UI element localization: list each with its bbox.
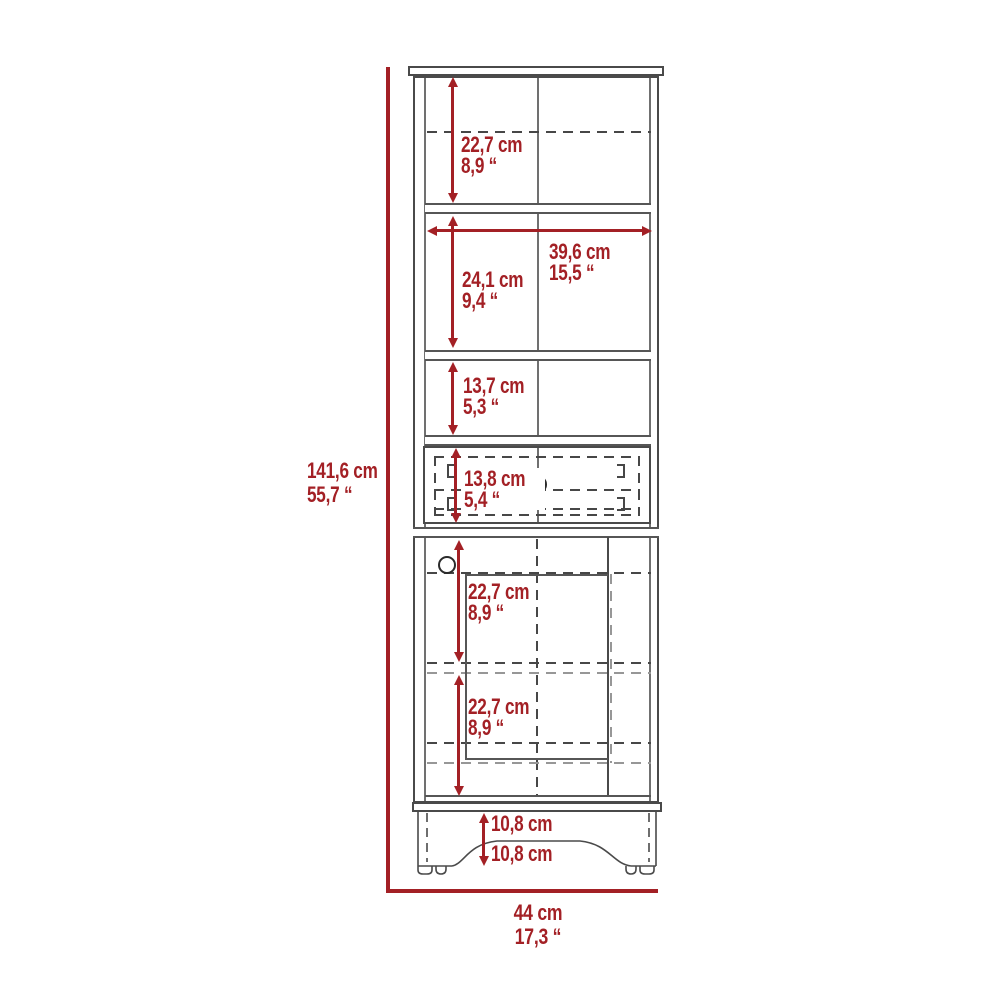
drawer-recess-right-hidden-line (638, 456, 640, 516)
right-foot (640, 866, 654, 874)
second-section-arrow-down (448, 338, 458, 348)
shelf-1 (425, 203, 651, 214)
shelf-2 (425, 350, 651, 361)
dim-value-cm: 10,8 cm (491, 813, 552, 834)
door-knob (438, 556, 456, 574)
dim-value-inch: 17,3 “ (474, 925, 602, 949)
dim-label-second-section: 24,1 cm 9,4 “ (462, 269, 541, 311)
door-panel-top-line (465, 574, 608, 576)
top-section-arrow-down (448, 193, 458, 203)
drawer-door-divider (413, 527, 659, 538)
dim-value-inch: 5,4 “ (464, 489, 525, 510)
dim-value-cm: 13,8 cm (464, 468, 525, 489)
dim-label-base-height: 10,8 cm (491, 813, 570, 834)
dim-label-top-section: 22,7 cm 8,9 “ (461, 134, 540, 176)
drawer-recess-left-hidden-line (434, 456, 436, 516)
dim-value-cm: 39,6 cm (549, 241, 610, 262)
third-section-arrow-shaft (451, 370, 454, 426)
dim-label-third-section: 13,7 cm 5,3 “ (463, 375, 542, 417)
dim-value-inch: 5,3 “ (463, 396, 524, 417)
dim-value-inch: 8,9 “ (468, 602, 529, 623)
dimension-diagram: 22,7 cm 8,9 “ 39,6 cm 15,5 “ 24,1 cm 9,4… (0, 0, 1000, 1000)
door-lower-hidden-shelf-line (427, 742, 651, 744)
door-panel-left-line (465, 574, 467, 760)
door-lower-arrow-shaft (457, 683, 460, 788)
interior-width-arrow-shaft (435, 229, 643, 232)
base-arrow-shaft (482, 821, 485, 858)
base-arrow-down (479, 856, 489, 866)
dim-value-inch: 15,5 “ (549, 262, 610, 283)
dim-label-overall-width: 44 cm 17,3 “ (458, 901, 618, 949)
dim-label-interior-width: 39,6 cm 15,5 “ (549, 241, 628, 283)
dim-label-overall-height: 141,6 cm 55,7 “ (307, 459, 398, 507)
left-foot (418, 866, 432, 874)
dim-value-cm: 24,1 cm (462, 269, 523, 290)
dim-value-cm: 22,7 cm (468, 581, 529, 602)
dim-value-cm: 22,7 cm (468, 696, 529, 717)
dim-value-inch: 8,9 “ (461, 155, 522, 176)
dim-label-drawer: 13,8 cm 5,4 “ (462, 468, 545, 510)
dim-value-inch: 8,9 “ (468, 717, 529, 738)
drawer-arrow-shaft (454, 456, 457, 514)
right-foot-glide (626, 866, 636, 874)
dim-value-cm: 44 cm (474, 901, 602, 925)
dim-value-cm: 22,7 cm (461, 134, 522, 155)
drawer-corner-bracket-br (617, 497, 625, 511)
drawer-recess-top-hidden-line (434, 456, 640, 458)
door-middle-hidden-shelf-line (427, 662, 651, 664)
shelf-3 (425, 435, 651, 446)
dim-value-cm: 13,7 cm (463, 375, 524, 396)
cabinet-top-board (408, 66, 664, 76)
door-upper-arrow-down (454, 652, 464, 662)
top-section-arrow-shaft (451, 85, 454, 196)
dim-value-inch: 55,7 “ (307, 483, 378, 507)
dim-value-cm: 10,8 cm (491, 843, 552, 864)
dim-value-inch: 9,4 “ (462, 290, 523, 311)
third-section-arrow-down (448, 425, 458, 435)
door-right-hidden-line (610, 574, 612, 763)
dim-value-cm: 141,6 cm (307, 459, 378, 483)
second-section-arrow-shaft (451, 224, 454, 339)
left-foot-glide (436, 866, 446, 874)
interior-width-arrow-right (642, 226, 652, 236)
dim-label-base-clearance: 10,8 cm (491, 843, 570, 864)
door-panel-bottom-line (465, 758, 608, 760)
dim-label-door-lower: 22,7 cm 8,9 “ (468, 696, 547, 738)
drawer-recess-bottom-hidden-line (434, 514, 640, 516)
overall-width-dimension-line (386, 889, 658, 893)
drawer-corner-bracket-tr (617, 464, 625, 478)
door-upper-arrow-shaft (457, 548, 460, 654)
door-middle-hidden-shelf-line-2 (427, 672, 651, 674)
dim-label-door-upper: 22,7 cm 8,9 “ (468, 581, 547, 623)
door-lower-hidden-shelf-line-2 (427, 762, 651, 764)
door-lower-arrow-down (454, 786, 464, 796)
drawer-arrow-down (451, 513, 461, 523)
